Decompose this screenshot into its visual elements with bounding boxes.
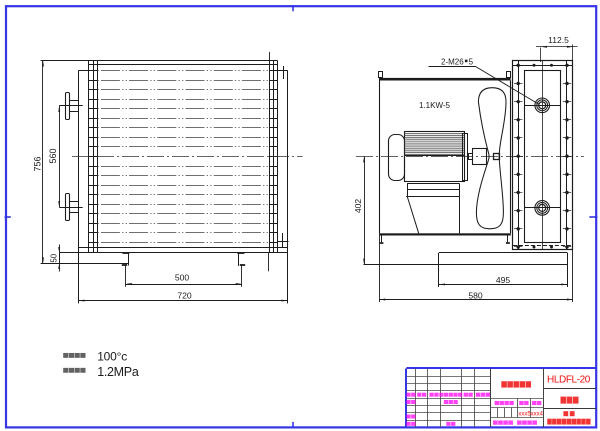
svg-text:1.1KW-5: 1.1KW-5 [419, 101, 451, 110]
svg-text:2-M26: 2-M26 [441, 57, 464, 66]
svg-text:112.5: 112.5 [548, 35, 569, 45]
svg-text:756: 756 [32, 156, 42, 171]
svg-text:580: 580 [468, 290, 483, 300]
svg-text:402: 402 [353, 199, 363, 214]
svg-text:495: 495 [496, 275, 511, 285]
svg-text:560: 560 [48, 148, 58, 163]
svg-text:50: 50 [49, 253, 58, 262]
svg-text:500: 500 [175, 273, 190, 283]
svg-text:HLDFL-20: HLDFL-20 [547, 375, 591, 386]
svg-text:720: 720 [177, 291, 192, 301]
svg-text:xxx4: xxx4 [531, 412, 544, 418]
svg-text:5: 5 [469, 57, 474, 66]
svg-text:100°c: 100°c [97, 349, 127, 363]
svg-text:1.2MPa: 1.2MPa [97, 365, 139, 379]
svg-text:xxx5: xxx5 [518, 412, 531, 418]
